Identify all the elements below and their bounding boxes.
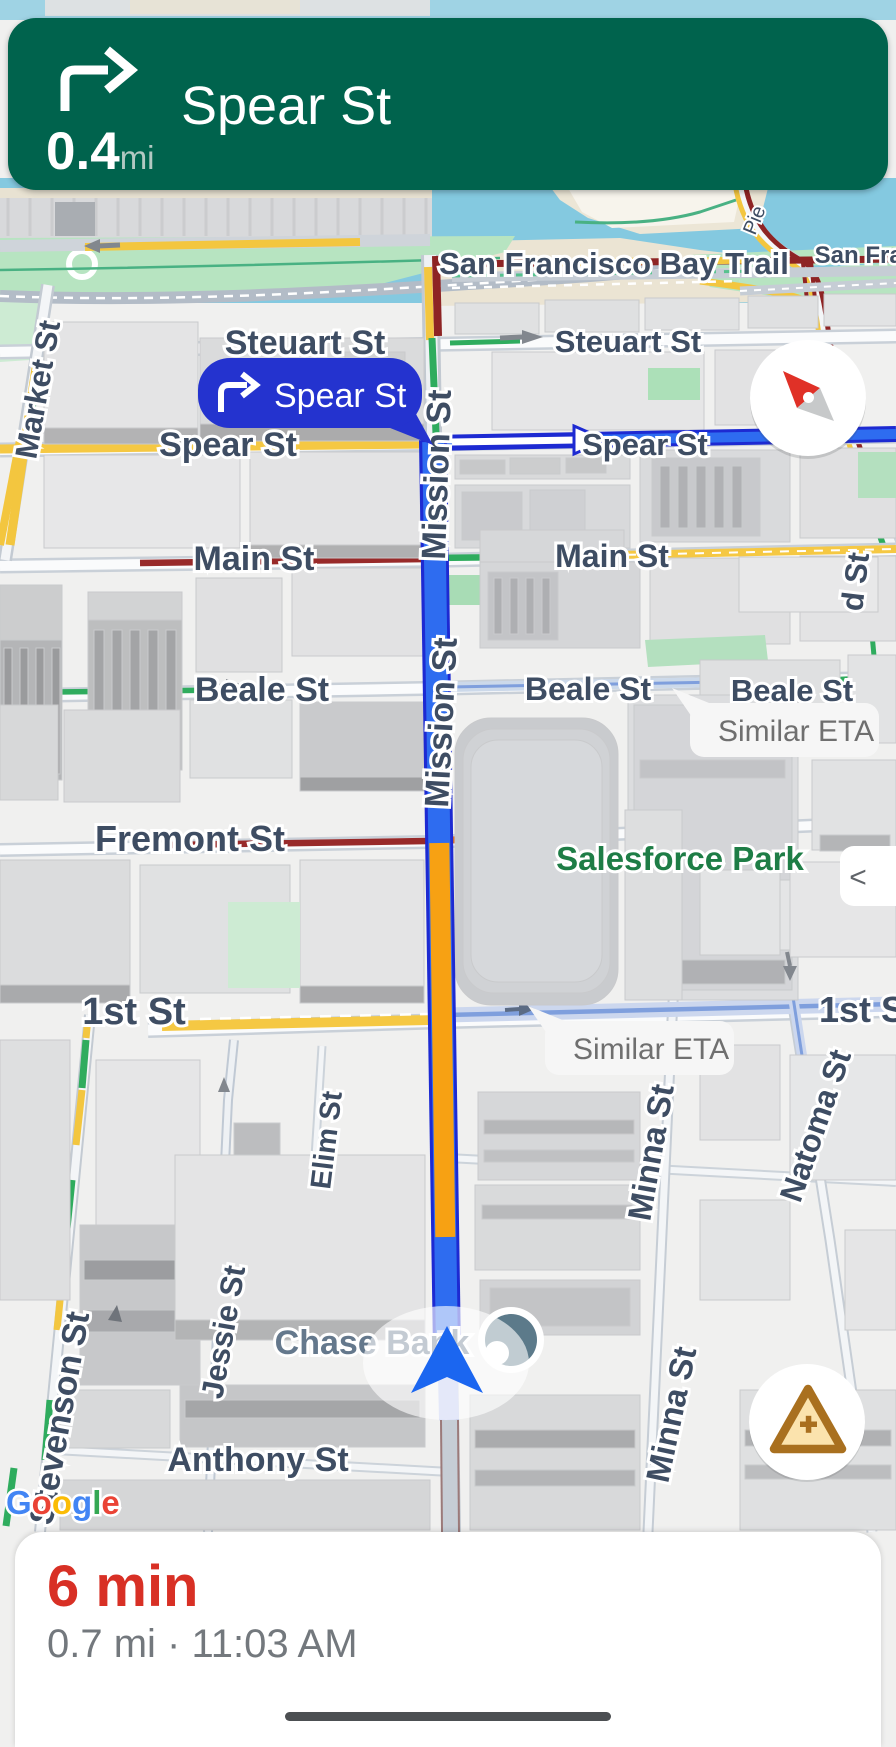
svg-text:Beale St: Beale St — [525, 671, 652, 707]
svg-text:Spear St: Spear St — [582, 427, 708, 462]
svg-text:d St: d St — [834, 550, 876, 612]
svg-text:Fremont St: Fremont St — [95, 818, 285, 859]
svg-text:Steuart St: Steuart St — [555, 324, 701, 359]
svg-text:1st S: 1st S — [819, 989, 896, 1030]
svg-text:Google: Google — [6, 1484, 120, 1521]
svg-text:Main St: Main St — [555, 538, 669, 574]
svg-text:Beale St: Beale St — [731, 673, 853, 708]
svg-text:Steuart St: Steuart St — [225, 324, 386, 362]
svg-text:Mission St: Mission St — [415, 389, 459, 560]
svg-text:Beale St: Beale St — [195, 671, 329, 709]
svg-text:Main St: Main St — [194, 540, 315, 578]
svg-text:Salesforce Park: Salesforce Park — [556, 840, 804, 877]
svg-text:Similar ETA: Similar ETA — [573, 1033, 729, 1066]
svg-text:Anthony St: Anthony St — [167, 1441, 348, 1479]
svg-text:Spear St: Spear St — [159, 426, 297, 464]
svg-text:San Fran: San Fran — [815, 242, 896, 269]
svg-text:San Francisco Bay Trail: San Francisco Bay Trail — [439, 246, 789, 281]
svg-text:<: < — [849, 861, 867, 894]
svg-text:Similar ETA: Similar ETA — [718, 715, 874, 748]
svg-text:Spear St: Spear St — [274, 377, 407, 415]
svg-text:1st St: 1st St — [82, 991, 186, 1033]
